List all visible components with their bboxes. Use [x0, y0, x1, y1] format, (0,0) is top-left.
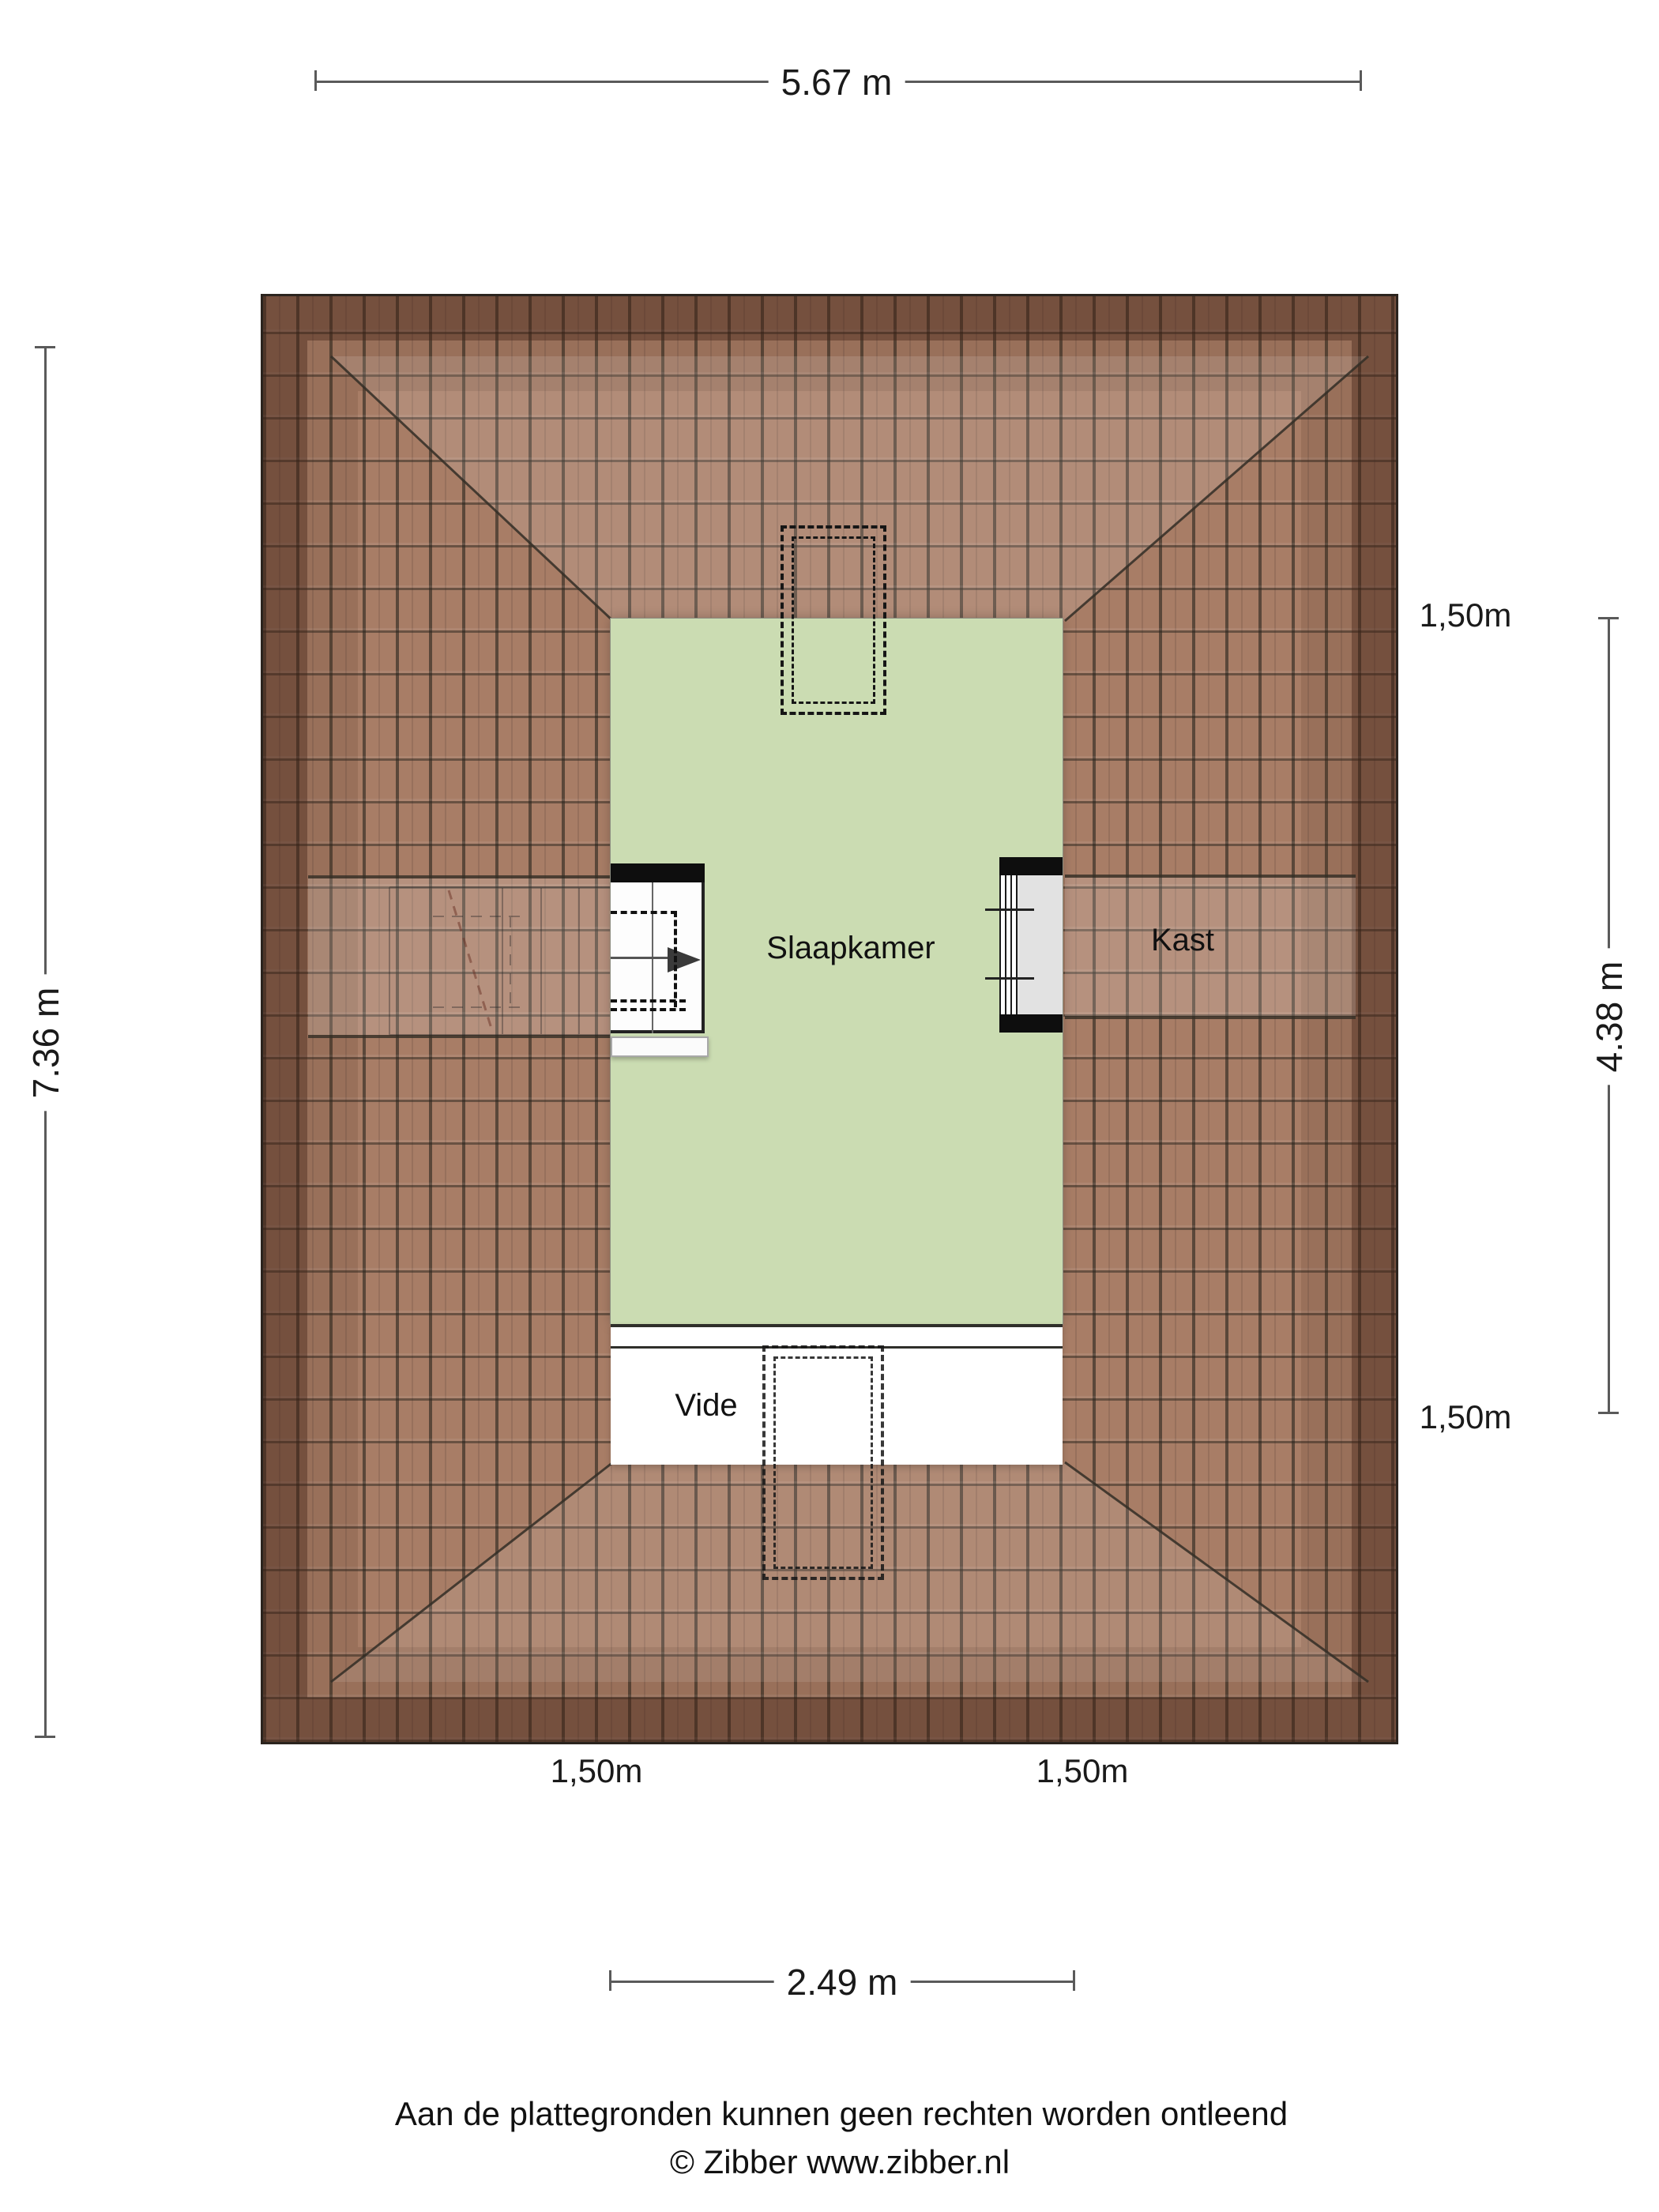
stair-walkline [611, 1008, 686, 1011]
offset-label-right-bottom: 1,50m [1420, 1401, 1512, 1434]
dimension-label-right: 4.38 m [1588, 949, 1631, 1085]
footer-disclaimer: Aan de plattegronden kunnen geen rechten… [395, 2097, 1288, 2131]
dimension-cap [1360, 70, 1362, 91]
label-kast: Kast [1151, 924, 1214, 956]
window-frame-lines [999, 875, 1018, 1014]
stair-direction-arrow [668, 947, 701, 972]
window-sill-panel [1018, 875, 1063, 1014]
wall-segment-bottom [999, 1014, 1063, 1033]
stair-landing [611, 1036, 709, 1057]
label-slaapkamer: Slaapkamer [766, 932, 935, 964]
window-tick [985, 908, 1034, 911]
duct-top-outline-inner [792, 536, 875, 704]
wall-segment-top [999, 857, 1063, 875]
dimension-cap [314, 70, 317, 91]
offset-label-bottom-right: 1,50m [1036, 1755, 1129, 1788]
duct-bottom-outline-inner [773, 1356, 873, 1569]
dimension-cap [1598, 617, 1619, 619]
footer-credit: © Zibber www.zibber.nl [670, 2146, 1010, 2179]
stair-walkline [611, 911, 677, 914]
dimension-label-left: 7.36 m [24, 975, 67, 1112]
offset-label-right-top: 1,50m [1420, 599, 1512, 632]
label-vide: Vide [675, 1390, 737, 1421]
dimension-cap [1598, 1412, 1619, 1414]
floorplan-page: 5.67 m 7.36 m 4.38 m 1,50m 1,50m [0, 0, 1659, 2212]
offset-label-bottom-left: 1,50m [551, 1755, 643, 1788]
dimension-cap [1073, 1970, 1075, 1991]
dimension-label-top: 5.67 m [769, 61, 905, 103]
stair-walkline [674, 911, 677, 1007]
dimension-label-bottom: 2.49 m [774, 1961, 911, 2003]
dimension-cap [609, 1970, 611, 1991]
dimension-cap [35, 346, 55, 348]
window-tick [985, 977, 1034, 980]
stair-wall-top [611, 863, 705, 882]
dimension-cap [35, 1736, 55, 1738]
stair-mid-line [611, 957, 668, 959]
stair-walkline [611, 999, 686, 1003]
